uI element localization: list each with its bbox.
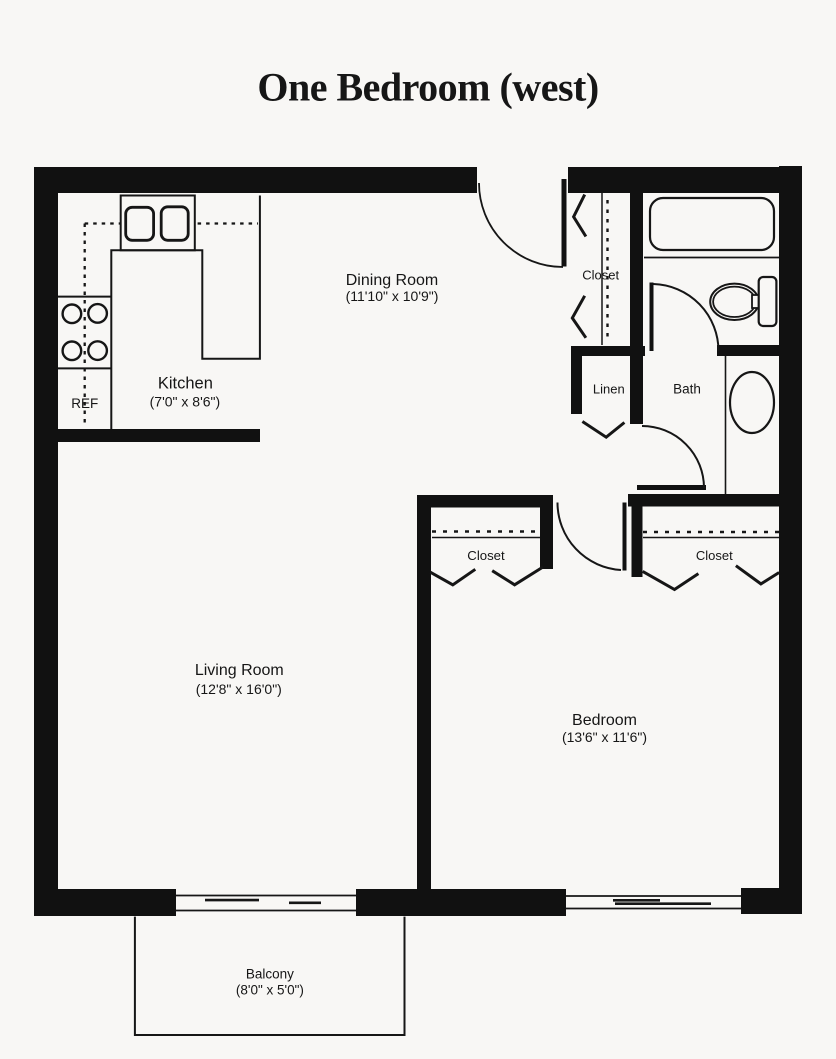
svg-text:REF: REF (71, 396, 98, 411)
svg-text:Living Room: Living Room (195, 662, 284, 679)
svg-text:Dining Room: Dining Room (346, 272, 438, 289)
svg-text:(11'10" x 10'9"): (11'10" x 10'9") (346, 288, 439, 304)
svg-text:(8'0" x 5'0"): (8'0" x 5'0") (236, 983, 304, 998)
svg-text:(13'6" x 11'6"): (13'6" x 11'6") (562, 729, 647, 745)
svg-text:(7'0" x 8'6"): (7'0" x 8'6") (150, 394, 221, 410)
svg-text:Closet: Closet (582, 268, 619, 283)
svg-text:Closet: Closet (467, 548, 505, 563)
svg-text:Bedroom: Bedroom (572, 712, 637, 729)
svg-text:(12'8" x 16'0"): (12'8" x 16'0") (196, 681, 282, 697)
svg-text:Kitchen: Kitchen (158, 375, 213, 393)
svg-text:One Bedroom (west): One Bedroom (west) (257, 65, 598, 110)
svg-text:Linen: Linen (593, 382, 625, 397)
svg-text:Closet: Closet (696, 548, 733, 563)
svg-text:Bath: Bath (673, 382, 701, 397)
svg-text:Balcony: Balcony (246, 967, 294, 982)
